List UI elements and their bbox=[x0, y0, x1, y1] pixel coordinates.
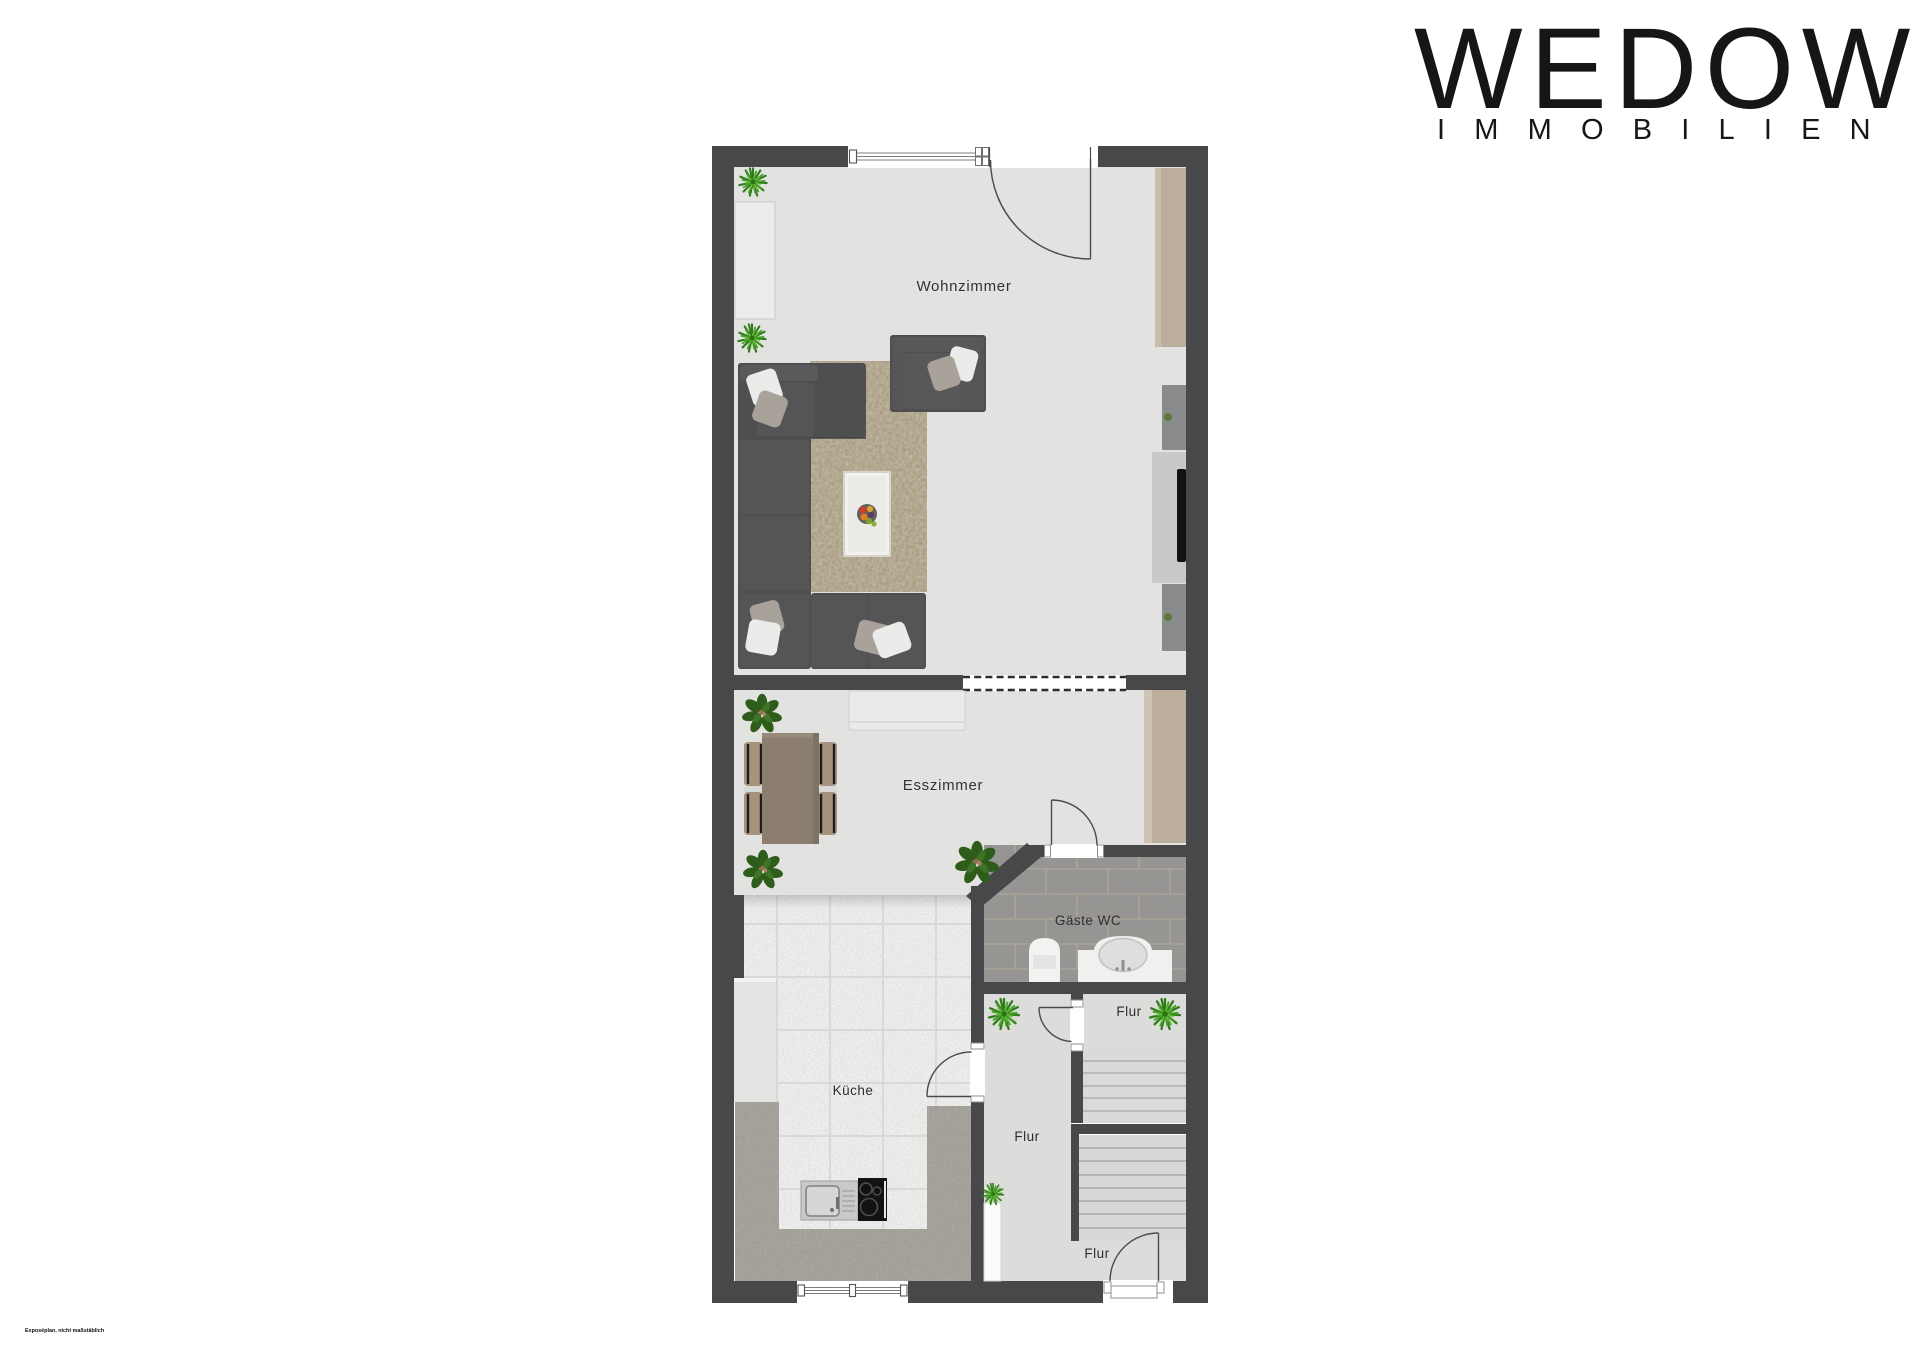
svg-text:Flur: Flur bbox=[1116, 1004, 1141, 1019]
svg-text:Gäste WC: Gäste WC bbox=[1055, 913, 1121, 928]
svg-text:Exposéplan, nicht maßstäblich: Exposéplan, nicht maßstäblich bbox=[25, 1328, 104, 1334]
svg-text:Esszimmer: Esszimmer bbox=[903, 777, 983, 794]
svg-text:Wohnzimmer: Wohnzimmer bbox=[916, 278, 1011, 295]
svg-text:Flur: Flur bbox=[1084, 1246, 1109, 1261]
svg-text:IMMOBILIEN: IMMOBILIEN bbox=[1437, 114, 1900, 146]
svg-text:Flur: Flur bbox=[1014, 1129, 1039, 1144]
svg-text:Küche: Küche bbox=[833, 1083, 874, 1098]
